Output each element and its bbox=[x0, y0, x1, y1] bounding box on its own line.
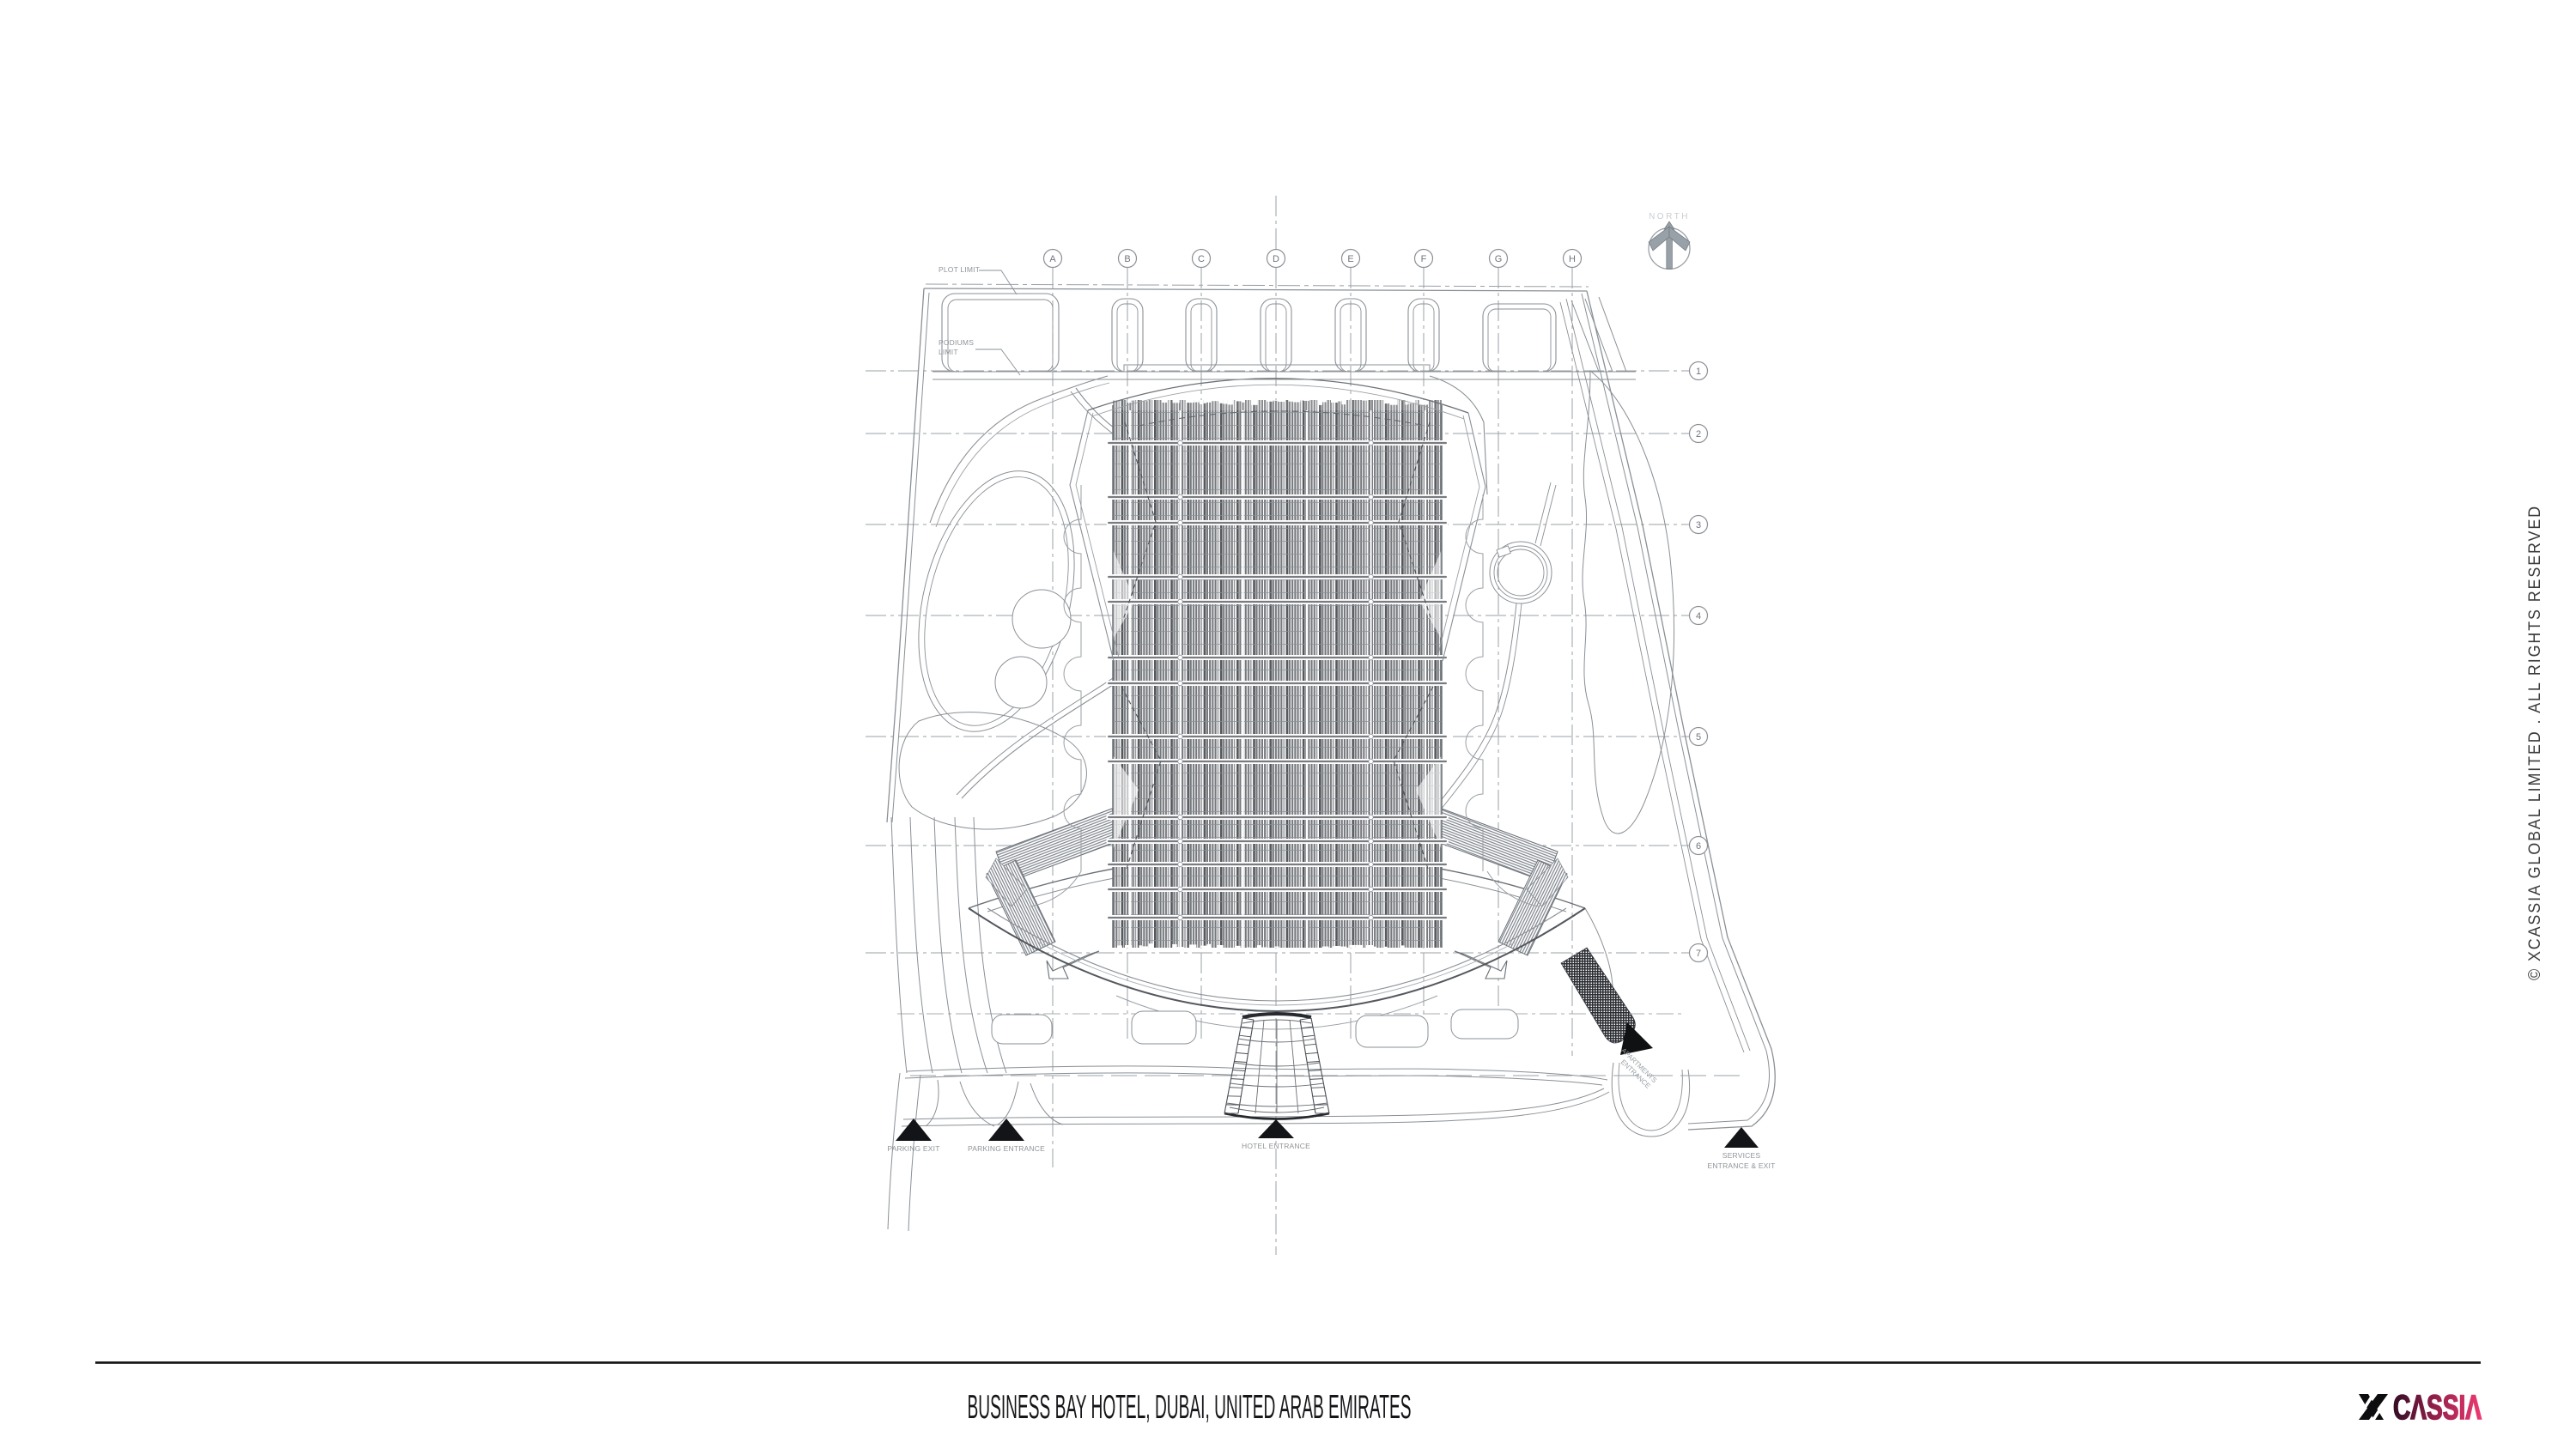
svg-text:G: G bbox=[1495, 254, 1503, 264]
svg-text:© XCASSIA GLOBAL LIMITED . ALL: © XCASSIA GLOBAL LIMITED . ALL RIGHTS RE… bbox=[2526, 505, 2544, 980]
svg-text:ENTRANCE & EXIT: ENTRANCE & EXIT bbox=[1707, 1161, 1775, 1170]
svg-text:PARKING EXIT: PARKING EXIT bbox=[887, 1144, 939, 1153]
svg-text:4: 4 bbox=[1696, 611, 1701, 621]
svg-text:1: 1 bbox=[1696, 367, 1701, 377]
svg-text:PODIUMS: PODIUMS bbox=[939, 338, 974, 347]
svg-text:3: 3 bbox=[1696, 520, 1701, 530]
svg-text:LIMIT: LIMIT bbox=[939, 348, 958, 356]
svg-text:HOTEL ENTRANCE: HOTEL ENTRANCE bbox=[1242, 1142, 1310, 1150]
svg-text:A: A bbox=[1049, 254, 1056, 264]
svg-text:D: D bbox=[1273, 254, 1279, 264]
svg-text:PARKING ENTRANCE: PARKING ENTRANCE bbox=[968, 1144, 1045, 1153]
svg-text:E: E bbox=[1347, 254, 1353, 264]
svg-text:SERVICES: SERVICES bbox=[1722, 1151, 1761, 1160]
svg-text:CΛSSIΛ: CΛSSIΛ bbox=[2393, 1389, 2482, 1427]
svg-text:F: F bbox=[1421, 254, 1427, 264]
svg-text:7: 7 bbox=[1696, 949, 1701, 959]
svg-text:6: 6 bbox=[1696, 841, 1701, 852]
svg-text:2: 2 bbox=[1696, 429, 1701, 440]
svg-text:NORTH: NORTH bbox=[1649, 212, 1690, 221]
svg-text:C: C bbox=[1198, 254, 1205, 264]
svg-text:5: 5 bbox=[1696, 732, 1701, 743]
svg-text:BUSINESS BAY HOTEL, DUBAI, UNI: BUSINESS BAY HOTEL, DUBAI, UNITED ARAB E… bbox=[968, 1389, 1412, 1426]
svg-text:B: B bbox=[1124, 254, 1130, 264]
svg-text:PLOT LIMIT: PLOT LIMIT bbox=[939, 265, 980, 274]
svg-text:H: H bbox=[1569, 254, 1576, 264]
